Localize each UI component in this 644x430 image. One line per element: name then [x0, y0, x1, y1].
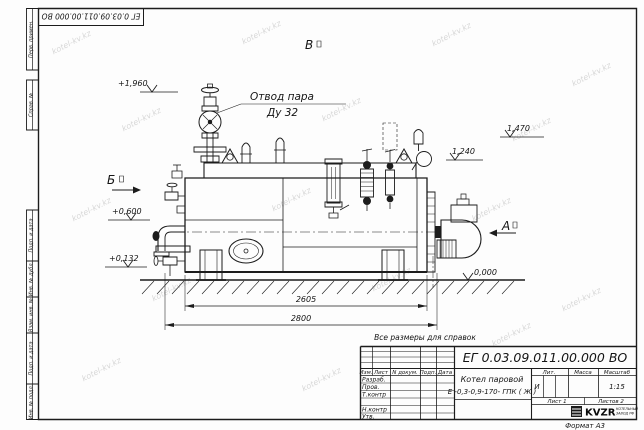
sheets-total: Листов 2: [597, 399, 624, 405]
col-data: Дата: [437, 370, 453, 376]
water-level-gauges: [325, 123, 397, 218]
row-tkontr: Т.контр: [362, 392, 386, 399]
col-ndoc: N докум.: [392, 370, 418, 376]
margin-label-inv-podl: Инв. № подл.: [28, 385, 34, 420]
format-label: Формат А3: [565, 422, 605, 430]
margin-label-vzam-inv: Взам. инв. №: [28, 298, 34, 332]
margin-label-podp-data-1: Подп. и дата: [28, 218, 34, 252]
row-utv: Утв.: [362, 414, 375, 421]
boiler-body: [174, 149, 438, 280]
sheet-number: Лист 1: [546, 399, 566, 405]
kvzr-logo: KVZR КОТЕЛЬНЫЙ ЗАВОД РФ: [571, 406, 638, 419]
steam-outlet-label: Отвод пара: [250, 91, 314, 103]
view-label-v: В: [305, 38, 313, 52]
logo-subtext-1: КОТЕЛЬНЫЙ: [616, 406, 638, 411]
dimension-2605: 2605: [296, 295, 316, 304]
col-izm: Изм.: [360, 370, 373, 376]
margin-label-inv-dubl: Инв. № дубл.: [28, 262, 34, 296]
elevation-1470: 1,470: [507, 124, 530, 133]
boiler-drawing-canvas: ЕГ 0.03.09.011.00.000 ВО Перв. примен. С…: [0, 0, 644, 430]
support-skid-left: [196, 250, 226, 280]
pressure-gauge-siphon: [412, 130, 432, 171]
title-doc-number: ЕГ 0.03.09.011.00.000 ВО: [463, 350, 628, 365]
view-labels: Б В А: [107, 38, 517, 237]
reference-note: Все размеры для справок: [374, 333, 476, 342]
corner-doc-number: ЕГ 0.03.09.011.00.000 ВО: [42, 11, 141, 20]
lit-value: И: [534, 383, 540, 391]
margin-label-podp-data-2: Подп. и дата: [28, 341, 34, 375]
steam-outlet-valve: Отвод пара Ду 32: [194, 84, 346, 163]
col-podp: Подп.: [420, 370, 437, 376]
col-lit: Лит.: [542, 370, 556, 376]
logo-subtext-2: ЗАВОД РФ: [616, 412, 634, 416]
drawing-sheet: kotel-kv.kz kotel-kv.kz kotel-kv.kz kote…: [0, 0, 644, 430]
safety-valve-stubs: [240, 138, 286, 163]
col-masshtab: Масштаб: [604, 370, 631, 376]
elevation-1960: +1,960: [118, 79, 148, 88]
elevation-0000: 0,000: [474, 268, 497, 277]
margin-label-perv-primen: Перв. примен.: [28, 20, 34, 58]
ground-line: [140, 280, 525, 294]
row-razrab: Разраб.: [362, 377, 386, 384]
elevation-0132: +0,132: [109, 254, 139, 263]
margin-label-sprav-no: Справ. №: [28, 93, 34, 117]
dimension-2800: 2800: [291, 314, 311, 323]
view-label-a: А: [501, 219, 510, 233]
col-massa: Масса: [574, 370, 592, 376]
logo-text: KVZR: [585, 408, 616, 419]
elevation-1240: 1,240: [452, 147, 475, 156]
row-prov: Пров.: [362, 384, 380, 391]
steam-outlet-size: Ду 32: [266, 107, 298, 119]
scale-value: 1:15: [609, 383, 625, 391]
col-list: Лист: [373, 370, 389, 376]
product-name-line2: Е -0,3-0,9-170- ГПК ( Ж ): [448, 388, 537, 396]
title-block: ЕГ 0.03.09.011.00.000 ВО Изм. Лист N док…: [360, 347, 639, 430]
support-skid-right: [378, 250, 408, 280]
margin-graphs: Перв. примен. Справ. № Подп. и дата Инв.…: [27, 9, 39, 420]
view-label-b: Б: [107, 173, 115, 187]
elevation-0600: +0,600: [112, 207, 142, 216]
product-name-line1: Котел паровой: [461, 375, 524, 384]
row-nkontr: Н.контр: [362, 407, 387, 414]
